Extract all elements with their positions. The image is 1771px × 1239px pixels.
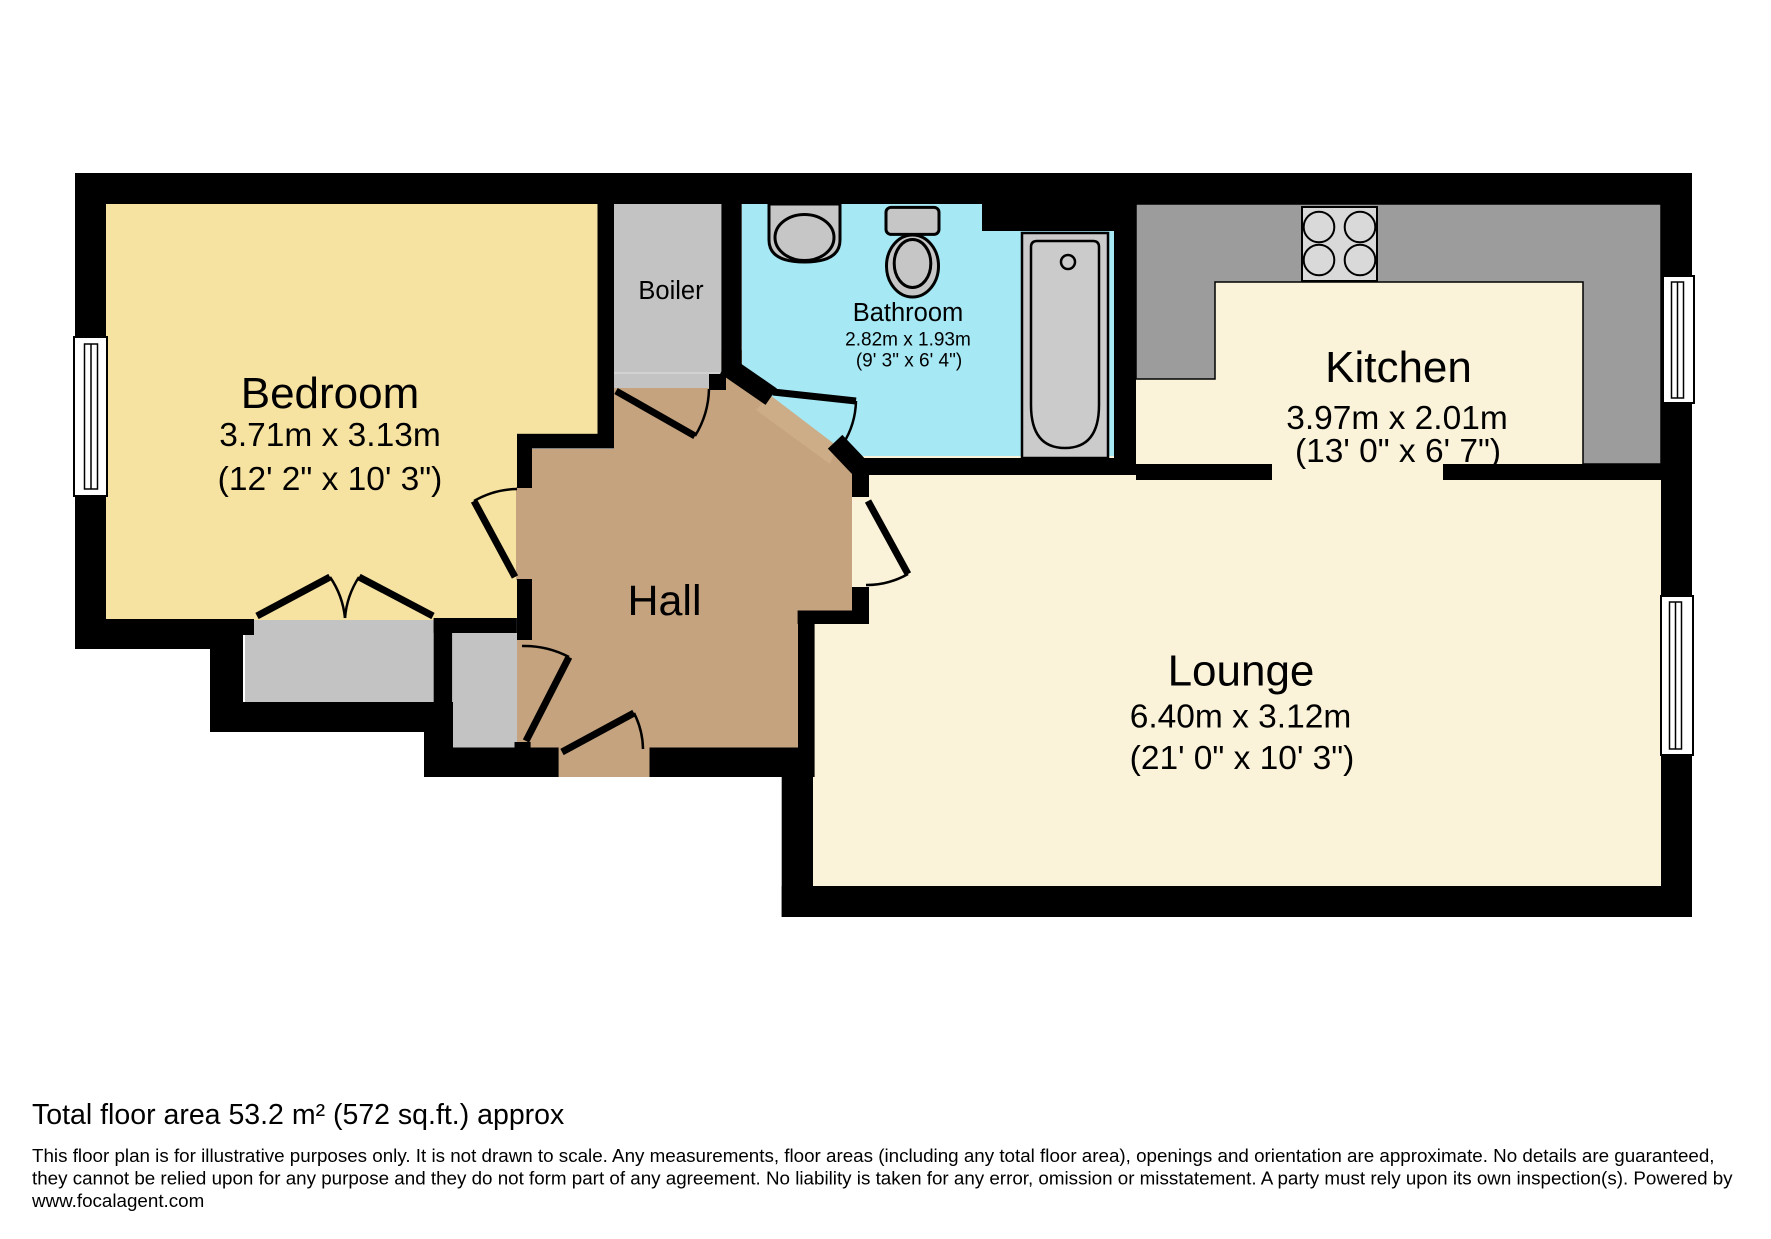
svg-text:2.82m x 1.93m: 2.82m x 1.93m bbox=[845, 330, 971, 351]
svg-text:Lounge: Lounge bbox=[1168, 647, 1315, 696]
svg-text:www.focalagent.com: www.focalagent.com bbox=[31, 1190, 204, 1211]
svg-text:(21' 0" x 10' 3"): (21' 0" x 10' 3") bbox=[1130, 740, 1355, 777]
svg-text:Hall: Hall bbox=[627, 577, 701, 625]
svg-text:(9' 3" x 6' 4"): (9' 3" x 6' 4") bbox=[856, 351, 962, 372]
svg-text:they cannot be relied upon for: they cannot be relied upon for any purpo… bbox=[32, 1168, 1733, 1189]
svg-text:3.97m x 2.01m: 3.97m x 2.01m bbox=[1286, 400, 1508, 437]
svg-text:(13' 0" x 6' 7"): (13' 0" x 6' 7") bbox=[1295, 433, 1501, 470]
svg-text:Total floor area 53.2 m² (572: Total floor area 53.2 m² (572 sq.ft.) ap… bbox=[32, 1099, 564, 1131]
svg-text:3.71m x 3.13m: 3.71m x 3.13m bbox=[219, 417, 441, 454]
svg-text:Bathroom: Bathroom bbox=[853, 299, 964, 327]
svg-text:6.40m x 3.12m: 6.40m x 3.12m bbox=[1130, 698, 1352, 735]
svg-text:Boiler: Boiler bbox=[638, 277, 704, 305]
svg-text:(12' 2" x 10' 3"): (12' 2" x 10' 3") bbox=[218, 461, 443, 498]
svg-text:Bedroom: Bedroom bbox=[241, 369, 420, 418]
svg-text:Kitchen: Kitchen bbox=[1325, 343, 1472, 392]
svg-text:This floor plan is for illustr: This floor plan is for illustrative purp… bbox=[32, 1145, 1715, 1166]
